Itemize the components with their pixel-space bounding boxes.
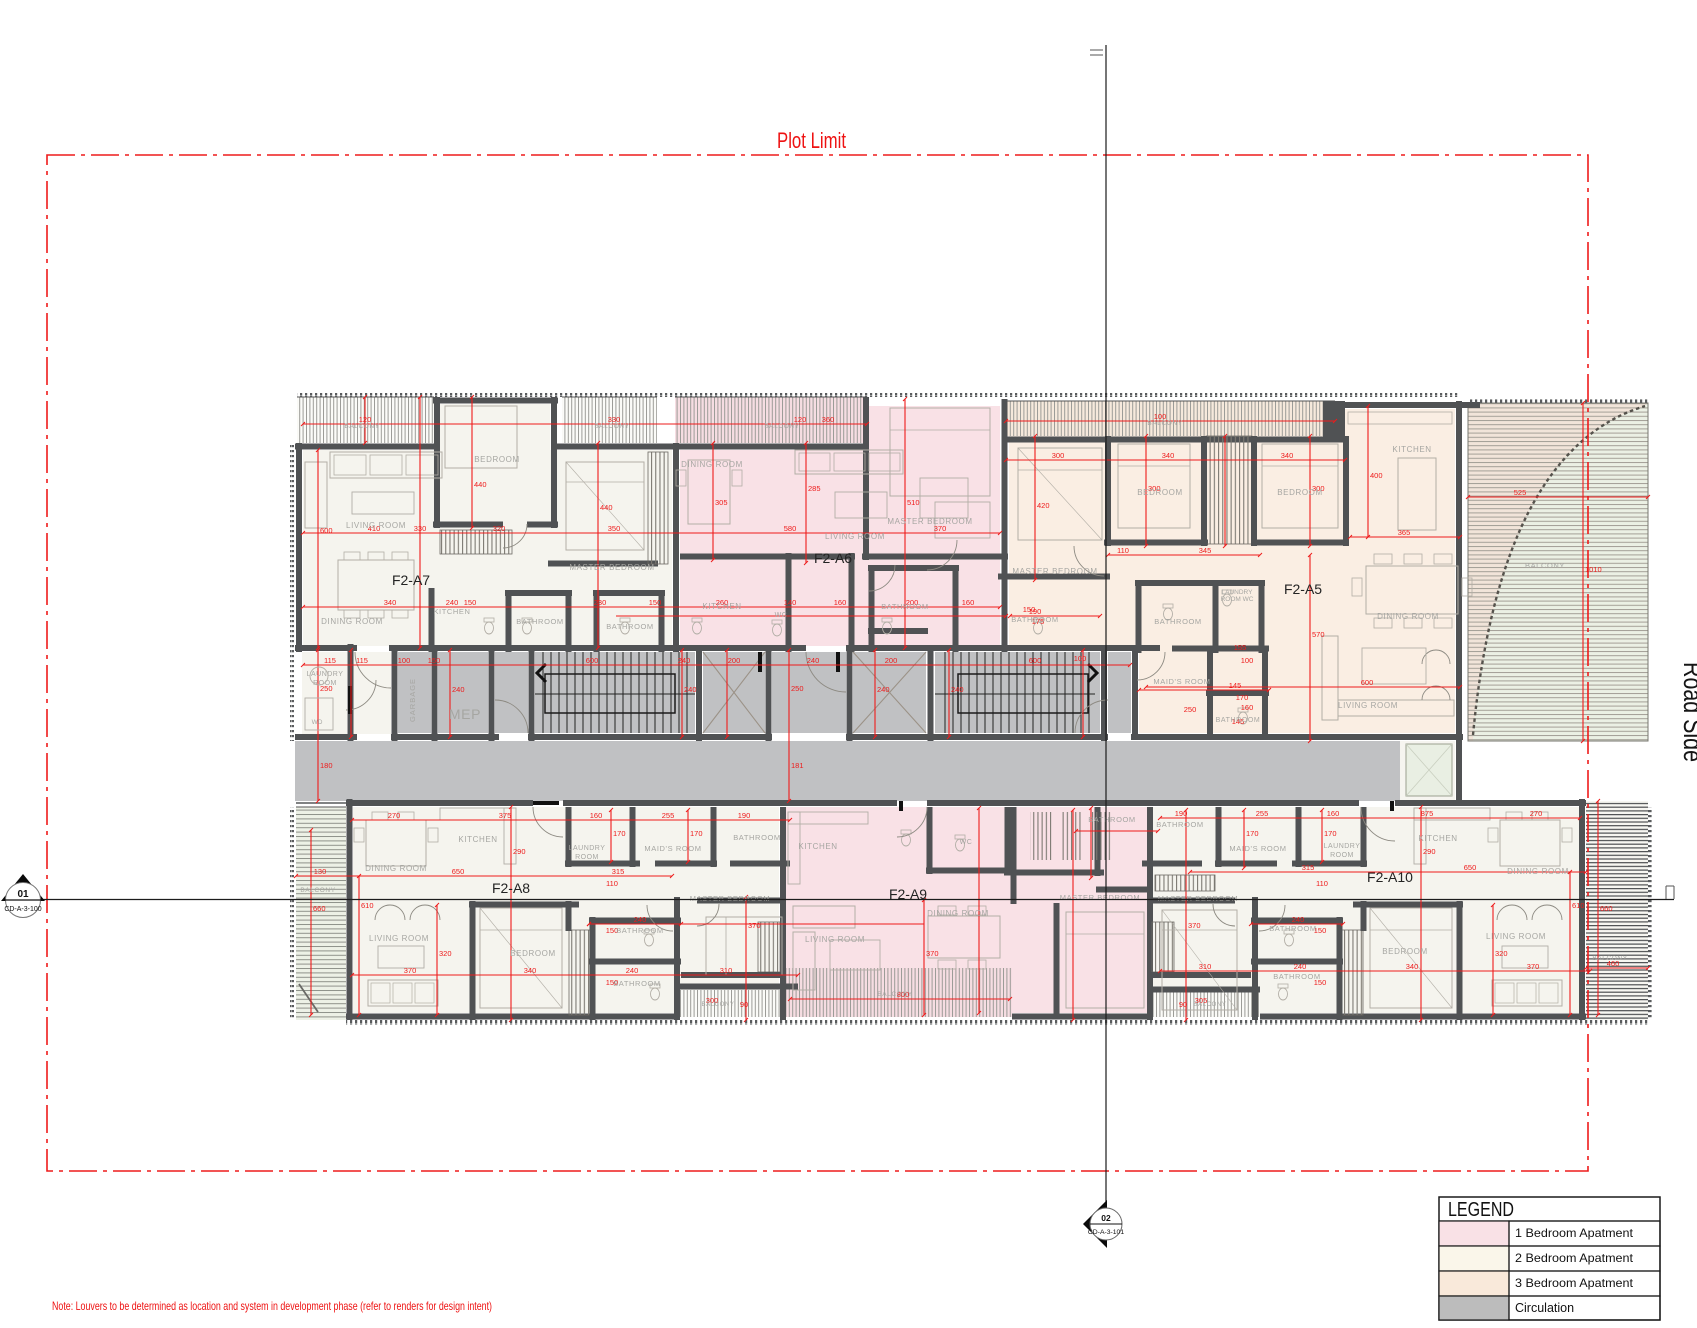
svg-text:200: 200 xyxy=(728,656,741,665)
svg-text:610: 610 xyxy=(361,901,374,910)
svg-text:DINING ROOM: DINING ROOM xyxy=(927,909,989,918)
svg-text:240: 240 xyxy=(452,685,465,694)
svg-text:200: 200 xyxy=(885,656,898,665)
svg-text:MASTER BEDROOM: MASTER BEDROOM xyxy=(1012,567,1097,576)
svg-text:240: 240 xyxy=(951,685,964,694)
svg-text:WC: WC xyxy=(960,839,973,846)
svg-text:BALCONY: BALCONY xyxy=(594,423,629,430)
svg-text:Circulation: Circulation xyxy=(1515,1301,1574,1315)
svg-text:F2-A10: F2-A10 xyxy=(1367,869,1413,885)
svg-text:BATHROOM: BATHROOM xyxy=(616,926,664,935)
svg-text:310: 310 xyxy=(720,966,733,975)
svg-text:2 Bedroom Apatment: 2 Bedroom Apatment xyxy=(1515,1251,1634,1265)
svg-text:BATHROOM: BATHROOM xyxy=(606,622,654,631)
svg-text:MAID'S ROOM: MAID'S ROOM xyxy=(1229,844,1286,853)
svg-text:MAID'S ROOM: MAID'S ROOM xyxy=(644,844,701,853)
svg-text:370: 370 xyxy=(1188,921,1201,930)
svg-text:MEP: MEP xyxy=(449,706,481,722)
svg-text:170: 170 xyxy=(1324,829,1337,838)
svg-text:270: 270 xyxy=(388,811,401,820)
svg-text:LIVING ROOM: LIVING ROOM xyxy=(346,521,406,530)
svg-text:285: 285 xyxy=(808,484,821,493)
svg-text:BEDROOM: BEDROOM xyxy=(510,949,556,958)
svg-text:320: 320 xyxy=(439,949,452,958)
svg-text:360: 360 xyxy=(822,415,835,424)
svg-text:170: 170 xyxy=(1236,693,1249,702)
svg-text:400: 400 xyxy=(1370,471,1383,480)
svg-text:340: 340 xyxy=(1281,451,1294,460)
svg-text:181: 181 xyxy=(791,761,804,770)
svg-text:150: 150 xyxy=(649,598,662,607)
svg-text:320: 320 xyxy=(1495,949,1508,958)
svg-text:340: 340 xyxy=(1406,962,1419,971)
svg-text:BALCONY: BALCONY xyxy=(1525,561,1565,570)
svg-text:KITCHEN: KITCHEN xyxy=(433,607,470,616)
svg-text:155: 155 xyxy=(1234,643,1247,652)
svg-text:DINING ROOM: DINING ROOM xyxy=(1377,612,1439,621)
svg-text:660: 660 xyxy=(313,904,326,913)
svg-text:160: 160 xyxy=(1327,809,1340,818)
svg-text:1 Bedroom Apatment: 1 Bedroom Apatment xyxy=(1515,1226,1634,1240)
svg-text:DINING ROOM: DINING ROOM xyxy=(321,617,383,626)
svg-text:600: 600 xyxy=(320,526,333,535)
svg-text:315: 315 xyxy=(1302,863,1315,872)
svg-text:160: 160 xyxy=(590,811,603,820)
svg-text:600: 600 xyxy=(1029,656,1042,665)
svg-text:510: 510 xyxy=(907,498,920,507)
svg-text:240: 240 xyxy=(634,915,647,924)
svg-text:BATHROOM: BATHROOM xyxy=(1156,820,1204,829)
svg-text:240: 240 xyxy=(807,656,820,665)
svg-text:160: 160 xyxy=(962,598,975,607)
svg-text:BEDROOM: BEDROOM xyxy=(1137,488,1183,497)
svg-text:340: 340 xyxy=(384,598,397,607)
svg-text:160: 160 xyxy=(834,598,847,607)
svg-text:600: 600 xyxy=(1361,678,1374,687)
svg-text:Road Side: Road Side xyxy=(1678,662,1697,762)
svg-text:BATHROOM: BATHROOM xyxy=(516,617,564,626)
svg-text:250: 250 xyxy=(1184,705,1197,714)
svg-text:240: 240 xyxy=(1294,962,1307,971)
svg-text:90: 90 xyxy=(740,1000,748,1009)
svg-text:DINING ROOM: DINING ROOM xyxy=(365,864,427,873)
svg-text:BATHROOM: BATHROOM xyxy=(1216,717,1261,724)
svg-text:110: 110 xyxy=(1117,546,1129,555)
svg-text:190: 190 xyxy=(738,811,751,820)
svg-text:02: 02 xyxy=(1101,1213,1111,1223)
svg-text:370: 370 xyxy=(748,921,761,930)
svg-text:440: 440 xyxy=(600,503,613,512)
svg-text:LAUNDRY: LAUNDRY xyxy=(307,671,344,678)
svg-text:270: 270 xyxy=(1530,809,1543,818)
svg-text:150: 150 xyxy=(1023,605,1036,614)
svg-text:320: 320 xyxy=(493,524,506,533)
svg-text:GARBAGE: GARBAGE xyxy=(408,678,417,722)
svg-text:345: 345 xyxy=(1199,546,1212,555)
svg-text:ROOM WC: ROOM WC xyxy=(1221,596,1254,603)
svg-text:BALCONY: BALCONY xyxy=(1147,420,1182,427)
svg-text:290: 290 xyxy=(513,847,526,856)
svg-text:CD-A-3-101: CD-A-3-101 xyxy=(1088,1229,1124,1236)
svg-text:BATHROOM: BATHROOM xyxy=(1273,972,1321,981)
svg-text:Plot Limit: Plot Limit xyxy=(777,128,846,153)
svg-text:ROOM: ROOM xyxy=(575,854,599,861)
svg-text:150: 150 xyxy=(428,656,441,665)
svg-text:BATHROOM: BATHROOM xyxy=(1154,617,1202,626)
svg-text:240: 240 xyxy=(684,685,697,694)
svg-text:KITCHEN: KITCHEN xyxy=(702,602,741,611)
svg-text:240: 240 xyxy=(678,656,691,665)
svg-text:ROOM: ROOM xyxy=(313,680,337,687)
svg-text:MAID'S ROOM: MAID'S ROOM xyxy=(1153,677,1210,686)
svg-text:160: 160 xyxy=(1241,703,1254,712)
svg-text:KITCHEN: KITCHEN xyxy=(458,835,497,844)
svg-text:145: 145 xyxy=(1229,681,1242,690)
svg-text:650: 650 xyxy=(452,867,465,876)
svg-text:BEDROOM: BEDROOM xyxy=(1277,488,1323,497)
svg-text:MASTER BEDROOM: MASTER BEDROOM xyxy=(1158,894,1239,903)
svg-text:LIVING ROOM: LIVING ROOM xyxy=(1486,932,1546,941)
svg-text:BATHROOM: BATHROOM xyxy=(733,833,781,842)
svg-text:315: 315 xyxy=(612,867,625,876)
svg-text:600: 600 xyxy=(586,656,599,665)
svg-text:BEDROOM: BEDROOM xyxy=(1382,947,1428,956)
svg-text:570: 570 xyxy=(1312,630,1325,639)
svg-text:KITCHEN: KITCHEN xyxy=(798,842,837,851)
svg-text:LIVING ROOM: LIVING ROOM xyxy=(1338,701,1398,710)
svg-text:240: 240 xyxy=(1292,915,1305,924)
svg-text:LEGEND: LEGEND xyxy=(1448,1199,1514,1221)
svg-text:420: 420 xyxy=(1037,501,1050,510)
svg-text:F2-A8: F2-A8 xyxy=(492,880,530,896)
svg-text:150: 150 xyxy=(464,598,477,607)
svg-text:365: 365 xyxy=(1398,528,1411,537)
svg-text:MASTER BEDROOM: MASTER BEDROOM xyxy=(1060,893,1141,902)
svg-text:BATHROOM: BATHROOM xyxy=(881,602,929,611)
svg-text:WC: WC xyxy=(775,612,788,619)
svg-text:LIVING ROOM: LIVING ROOM xyxy=(805,935,865,944)
svg-text:BALCONY: BALCONY xyxy=(877,991,912,998)
svg-text:BATHROOM: BATHROOM xyxy=(1088,815,1136,824)
svg-text:MASTER BEDROOM: MASTER BEDROOM xyxy=(887,517,972,526)
svg-text:255: 255 xyxy=(662,811,675,820)
svg-text:140: 140 xyxy=(784,598,797,607)
svg-text:525: 525 xyxy=(1514,488,1527,497)
svg-text:KITCHEN: KITCHEN xyxy=(1418,834,1457,843)
svg-text:100: 100 xyxy=(1074,654,1087,663)
svg-text:Note: Louvers to be determined: Note: Louvers to be determined as locati… xyxy=(52,1299,492,1313)
svg-text:BALCONY: BALCONY xyxy=(1194,1002,1227,1008)
svg-text:240: 240 xyxy=(626,966,639,975)
svg-text:BALCONY: BALCONY xyxy=(702,1002,735,1008)
svg-text:370: 370 xyxy=(1527,962,1540,971)
svg-text:LIVING ROOM: LIVING ROOM xyxy=(369,934,429,943)
svg-text:ROOM: ROOM xyxy=(1330,852,1354,859)
svg-text:BALCONY: BALCONY xyxy=(300,887,335,894)
svg-text:F2-A6: F2-A6 xyxy=(814,550,852,566)
svg-text:BATHROOM: BATHROOM xyxy=(1269,924,1317,933)
svg-text:DINING ROOM: DINING ROOM xyxy=(681,460,743,469)
svg-text:875: 875 xyxy=(1421,809,1434,818)
svg-text:170: 170 xyxy=(613,829,626,838)
svg-text:MASTER BEDROOM: MASTER BEDROOM xyxy=(690,894,771,903)
svg-text:115: 115 xyxy=(324,656,336,665)
svg-text:115: 115 xyxy=(356,656,368,665)
svg-text:BATHROOM: BATHROOM xyxy=(1011,615,1059,624)
svg-text:340: 340 xyxy=(524,966,537,975)
svg-text:KITCHEN: KITCHEN xyxy=(1392,445,1431,454)
svg-text:110: 110 xyxy=(1316,879,1328,888)
svg-text:LAUNDRY: LAUNDRY xyxy=(569,845,606,852)
svg-text:LIVING ROOM: LIVING ROOM xyxy=(825,532,885,541)
svg-text:100: 100 xyxy=(1241,656,1254,665)
svg-text:170: 170 xyxy=(690,829,703,838)
svg-text:90: 90 xyxy=(1179,1000,1187,1009)
svg-text:180: 180 xyxy=(320,761,333,770)
svg-text:F2-A7: F2-A7 xyxy=(392,572,430,588)
svg-text:340: 340 xyxy=(1162,451,1175,460)
svg-text:BEDROOM: BEDROOM xyxy=(474,455,520,464)
svg-text:650: 650 xyxy=(1464,863,1477,872)
svg-text:305: 305 xyxy=(715,498,728,507)
svg-text:170: 170 xyxy=(1246,829,1259,838)
svg-text:110: 110 xyxy=(606,879,618,888)
svg-text:250: 250 xyxy=(791,684,804,693)
svg-text:610: 610 xyxy=(1572,901,1585,910)
svg-text:MASTER BEDROOM: MASTER BEDROOM xyxy=(569,563,654,572)
svg-text:580: 580 xyxy=(784,524,797,533)
svg-text:290: 290 xyxy=(1423,847,1436,856)
svg-text:CD-A-3-100: CD-A-3-100 xyxy=(4,906,41,913)
svg-text:130: 130 xyxy=(314,867,327,876)
svg-text:310: 310 xyxy=(1199,962,1212,971)
svg-text:240: 240 xyxy=(877,685,890,694)
svg-text:01: 01 xyxy=(17,889,29,900)
svg-text:BALCONY: BALCONY xyxy=(344,423,379,430)
svg-text:230: 230 xyxy=(594,598,607,607)
svg-text:440: 440 xyxy=(474,480,487,489)
svg-text:255: 255 xyxy=(1256,809,1269,818)
svg-text:3 Bedroom Apatment: 3 Bedroom Apatment xyxy=(1515,1276,1634,1290)
svg-text:370: 370 xyxy=(404,966,417,975)
svg-text:660: 660 xyxy=(1600,904,1613,913)
svg-text:BALCONY: BALCONY xyxy=(764,423,799,430)
svg-text:F2-A5: F2-A5 xyxy=(1284,581,1322,597)
svg-text:370: 370 xyxy=(926,949,939,958)
svg-text:300: 300 xyxy=(1052,451,1065,460)
svg-text:LAUNDRY: LAUNDRY xyxy=(1324,843,1361,850)
svg-text:375: 375 xyxy=(499,811,512,820)
svg-text:LAUNDRY: LAUNDRY xyxy=(1222,589,1254,596)
svg-text:BATHROOM: BATHROOM xyxy=(613,979,661,988)
svg-text:DINING ROOM: DINING ROOM xyxy=(1507,867,1569,876)
svg-text:WD: WD xyxy=(312,719,323,726)
svg-text:BALCONY: BALCONY xyxy=(1592,955,1627,962)
svg-text:350: 350 xyxy=(608,524,621,533)
svg-text:240: 240 xyxy=(446,598,459,607)
svg-text:100: 100 xyxy=(398,656,411,665)
